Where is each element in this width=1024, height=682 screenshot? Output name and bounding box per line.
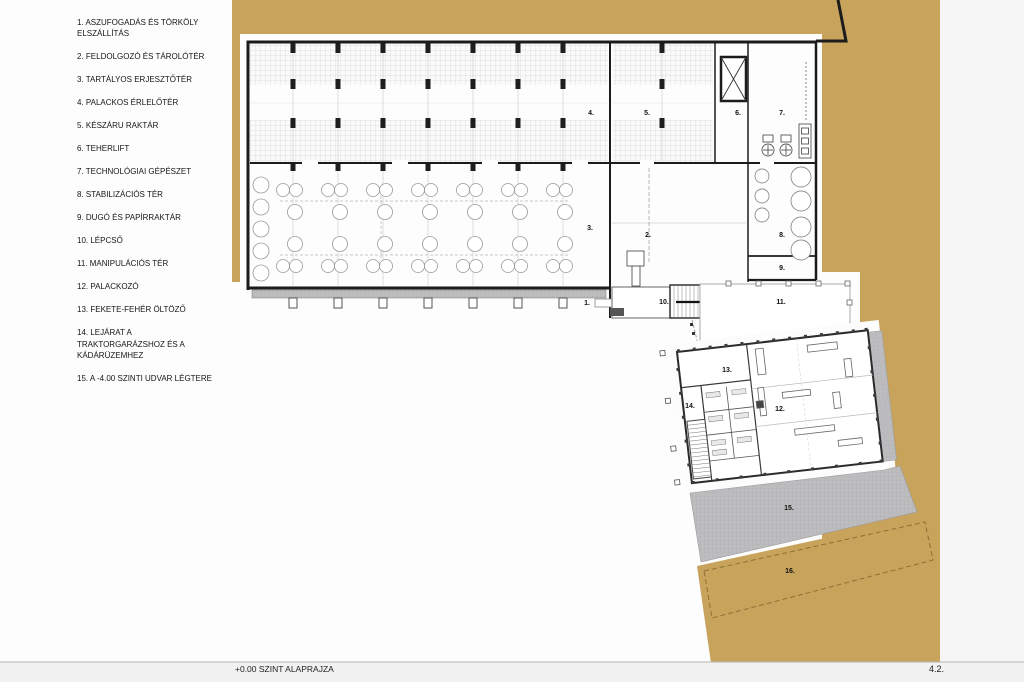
press-equipment	[627, 251, 644, 266]
room-label-2: 2.	[645, 232, 651, 239]
room-label-12: 12.	[775, 406, 785, 413]
legend-item-4: 4. PALACKOS ÉRLELŐTÉR	[77, 97, 235, 109]
legend-item-7: 7. TECHNOLÓGIAI GÉPÉSZET	[77, 166, 235, 178]
legend-item-11: 11. MANIPULÁCIÓS TÉR	[77, 258, 235, 270]
room-label-9: 9.	[779, 265, 785, 272]
room-label-10: 10.	[659, 299, 669, 306]
sheet-number: 4.2.	[929, 664, 944, 674]
room-label-7: 7.	[779, 110, 785, 117]
legend-item-9: 9. DUGÓ ÉS PAPÍRRAKTÁR	[77, 212, 235, 224]
legend-item-15: 15. A -4.00 SZINTI UDVAR LÉGTERE	[77, 373, 235, 385]
legend-item-1: 1. ASZUFOGADÁS ÉS TÖRKÖLY ELSZÁLLÍTÁS	[77, 17, 235, 40]
legend-item-8: 8. STABILIZÁCIÓS TÉR	[77, 189, 235, 201]
legend-item-14: 14. LEJÁRAT A TRAKTORGARÁZSHOZ ÉS A KÁDÁ…	[77, 327, 235, 362]
room-label-11: 11.	[776, 299, 785, 306]
drawing-sheet: 1. 2. 3. 4. 5. 6. 7. 8. 9. 10. 11. 12. 1…	[0, 0, 1024, 682]
title-strip	[0, 662, 1024, 682]
legend-item-3: 3. TARTÁLYOS ERJESZTŐTÉR	[77, 74, 235, 86]
room-label-16: 16.	[785, 568, 795, 575]
room-label-6: 6.	[735, 110, 741, 117]
legend-item-13: 13. FEKETE-FEHÉR ÖLTÖZŐ	[77, 304, 235, 316]
room-label-8: 8.	[779, 232, 785, 239]
room-label-1: 1.	[584, 300, 590, 307]
room-label-4: 4.	[588, 110, 594, 117]
legend-item-12: 12. PALACKOZÓ	[77, 281, 235, 293]
legend-item-5: 5. KÉSZÁRU RAKTÁR	[77, 120, 235, 132]
room-label-14: 14.	[685, 403, 695, 410]
drawing-title: +0.00 SZINT ALAPRAJZA	[235, 664, 334, 674]
freight-lift	[721, 57, 746, 101]
room-label-15: 15.	[784, 505, 794, 512]
legend-item-10: 10. LÉPCSŐ	[77, 235, 235, 247]
room-label-3: 3.	[587, 225, 593, 232]
legend-item-2: 2. FELDOLGOZÓ ÉS TÁROLÓTÉR	[77, 51, 235, 63]
room-label-13: 13.	[722, 367, 732, 374]
legend: 1. ASZUFOGADÁS ÉS TÖRKÖLY ELSZÁLLÍTÁS 2.…	[77, 5, 235, 396]
legend-item-6: 6. TEHERLIFT	[77, 143, 235, 155]
room-label-5: 5.	[644, 110, 650, 117]
